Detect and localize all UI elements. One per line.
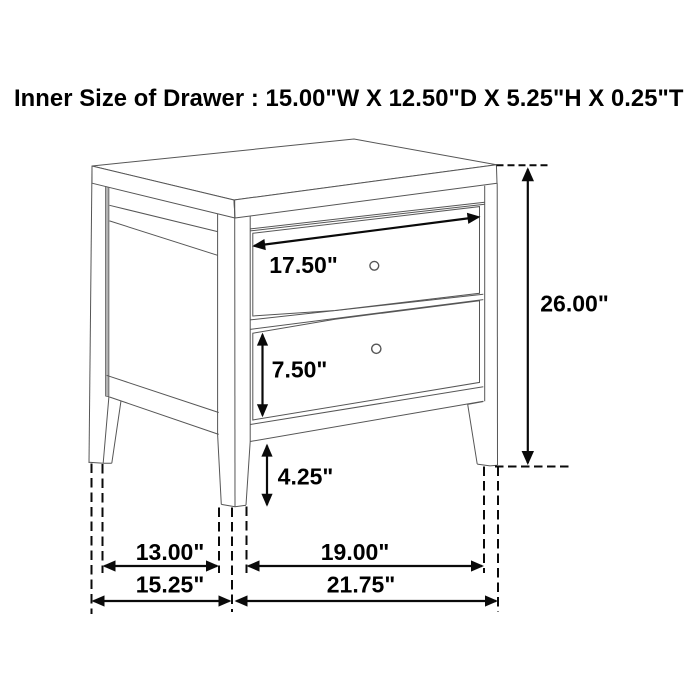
svg-text:15.25": 15.25" — [136, 571, 204, 597]
svg-text:19.00": 19.00" — [321, 539, 389, 565]
svg-text:13.00": 13.00" — [136, 539, 204, 565]
svg-text:17.50": 17.50" — [269, 252, 337, 278]
svg-text:21.75": 21.75" — [327, 571, 395, 597]
svg-text:4.25": 4.25" — [278, 463, 334, 489]
svg-text:26.00": 26.00" — [540, 291, 608, 317]
svg-text:7.50": 7.50" — [272, 356, 328, 382]
